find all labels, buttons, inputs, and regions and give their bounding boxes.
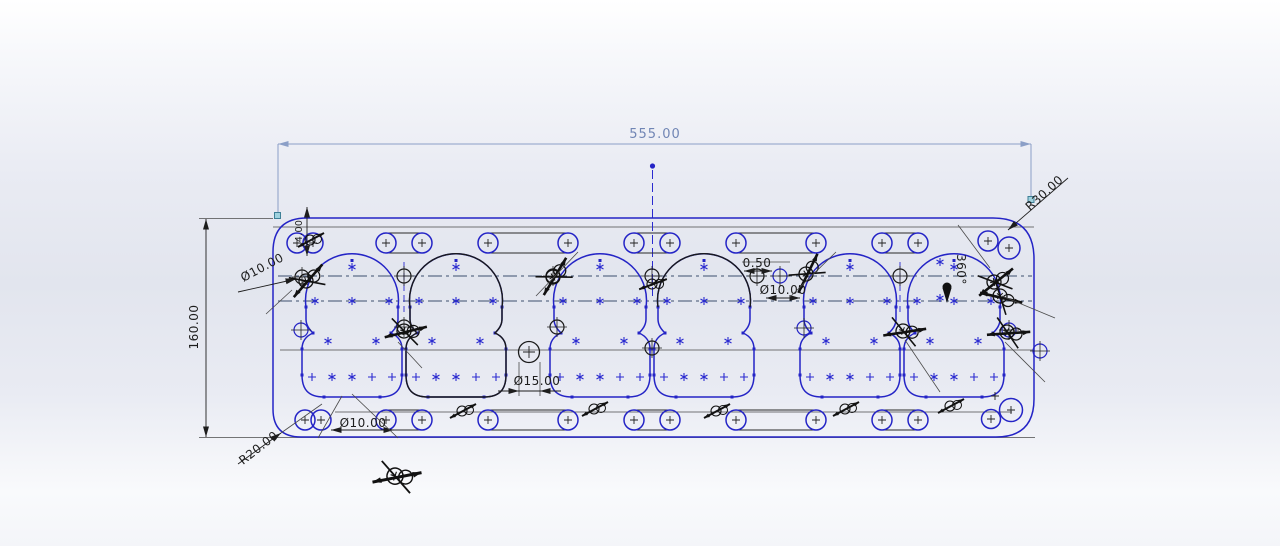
cad-viewport: 555.00 160.00 R30.00 R20.00 Ø10.00 0.50 … — [0, 0, 1280, 546]
bottom-slot-row — [295, 392, 1023, 430]
coolant-slot[interactable] — [872, 233, 928, 253]
dim-dia-center-text[interactable]: Ø15.00 — [514, 374, 561, 388]
annotation-cluster[interactable] — [287, 264, 330, 297]
selection-handle[interactable] — [275, 213, 281, 219]
centerlines[interactable] — [278, 163, 1032, 312]
dimension-radius-top-right[interactable]: R30.00 — [1008, 173, 1068, 230]
dowel-hole[interactable] — [794, 318, 814, 338]
dim-height-text[interactable]: 160.00 — [187, 305, 201, 350]
annotation-cluster[interactable] — [938, 399, 964, 413]
coolant-slot[interactable] — [376, 233, 432, 253]
annotation-cluster[interactable] — [582, 402, 608, 416]
plate-outline[interactable] — [273, 218, 1034, 437]
dowel-hole[interactable] — [1030, 341, 1050, 361]
dim-offset-text[interactable]: 0.50 — [743, 256, 772, 270]
sketch-point-marks — [937, 258, 944, 302]
bore-opening-2[interactable] — [405, 254, 508, 399]
dowel-hole[interactable] — [547, 317, 567, 337]
dimension-dia-center[interactable]: Ø15.00 — [498, 362, 561, 396]
annotation-cluster[interactable] — [450, 404, 476, 418]
dimension-offset-mid[interactable]: 0.50 — [742, 256, 790, 271]
dimension-dia-left[interactable]: Ø10.00 — [238, 250, 296, 292]
corner-hole-pair-bottom-left[interactable] — [295, 410, 331, 430]
top-slot-row — [287, 231, 1020, 259]
coolant-slot[interactable] — [872, 410, 928, 430]
annotation-cluster[interactable] — [833, 402, 859, 416]
dim-r30-text[interactable]: R30.00 — [1023, 173, 1066, 214]
drawing-canvas: 555.00 160.00 R30.00 R20.00 Ø10.00 0.50 … — [0, 0, 1280, 546]
dimension-overall-width[interactable]: 555.00 — [275, 127, 1035, 219]
dim-r20-text[interactable]: R20.00 — [236, 428, 281, 467]
coolant-slot[interactable] — [478, 233, 578, 253]
sketch-point[interactable] — [650, 163, 655, 168]
coolant-slot[interactable] — [726, 233, 826, 253]
dimension-radius-bottom-left[interactable]: R20.00 — [236, 404, 322, 467]
hole-center-marks — [523, 346, 535, 358]
coolant-slot[interactable] — [624, 410, 680, 430]
dim-angle-text[interactable]: 360° — [954, 254, 968, 285]
dimension-angle[interactable]: 360° — [943, 254, 969, 303]
bore-opening-6[interactable] — [903, 254, 1006, 399]
coolant-slot[interactable] — [478, 410, 578, 430]
dowel-hole[interactable] — [394, 266, 414, 286]
leader-arrow — [943, 288, 952, 303]
dim-corner-text[interactable]: 4.00 — [294, 220, 305, 242]
coolant-slot[interactable] — [726, 410, 826, 430]
dim-dia-bottom-text[interactable]: Ø10.00 — [340, 416, 387, 430]
cluster-leaders — [266, 225, 1055, 392]
bore-opening-5[interactable] — [799, 254, 902, 399]
dimension-overall-height[interactable]: 160.00 — [187, 219, 206, 437]
dim-dia-left-text[interactable]: Ø10.00 — [238, 250, 286, 284]
dowel-hole[interactable] — [642, 266, 662, 286]
dowel-hole[interactable] — [642, 338, 662, 358]
annotation-cluster[interactable] — [373, 459, 422, 495]
dim-width-text[interactable]: 555.00 — [629, 127, 681, 142]
dowel-hole[interactable] — [291, 320, 311, 340]
bore-opening-1[interactable] — [301, 254, 404, 399]
bore-opening-4[interactable] — [653, 254, 756, 399]
